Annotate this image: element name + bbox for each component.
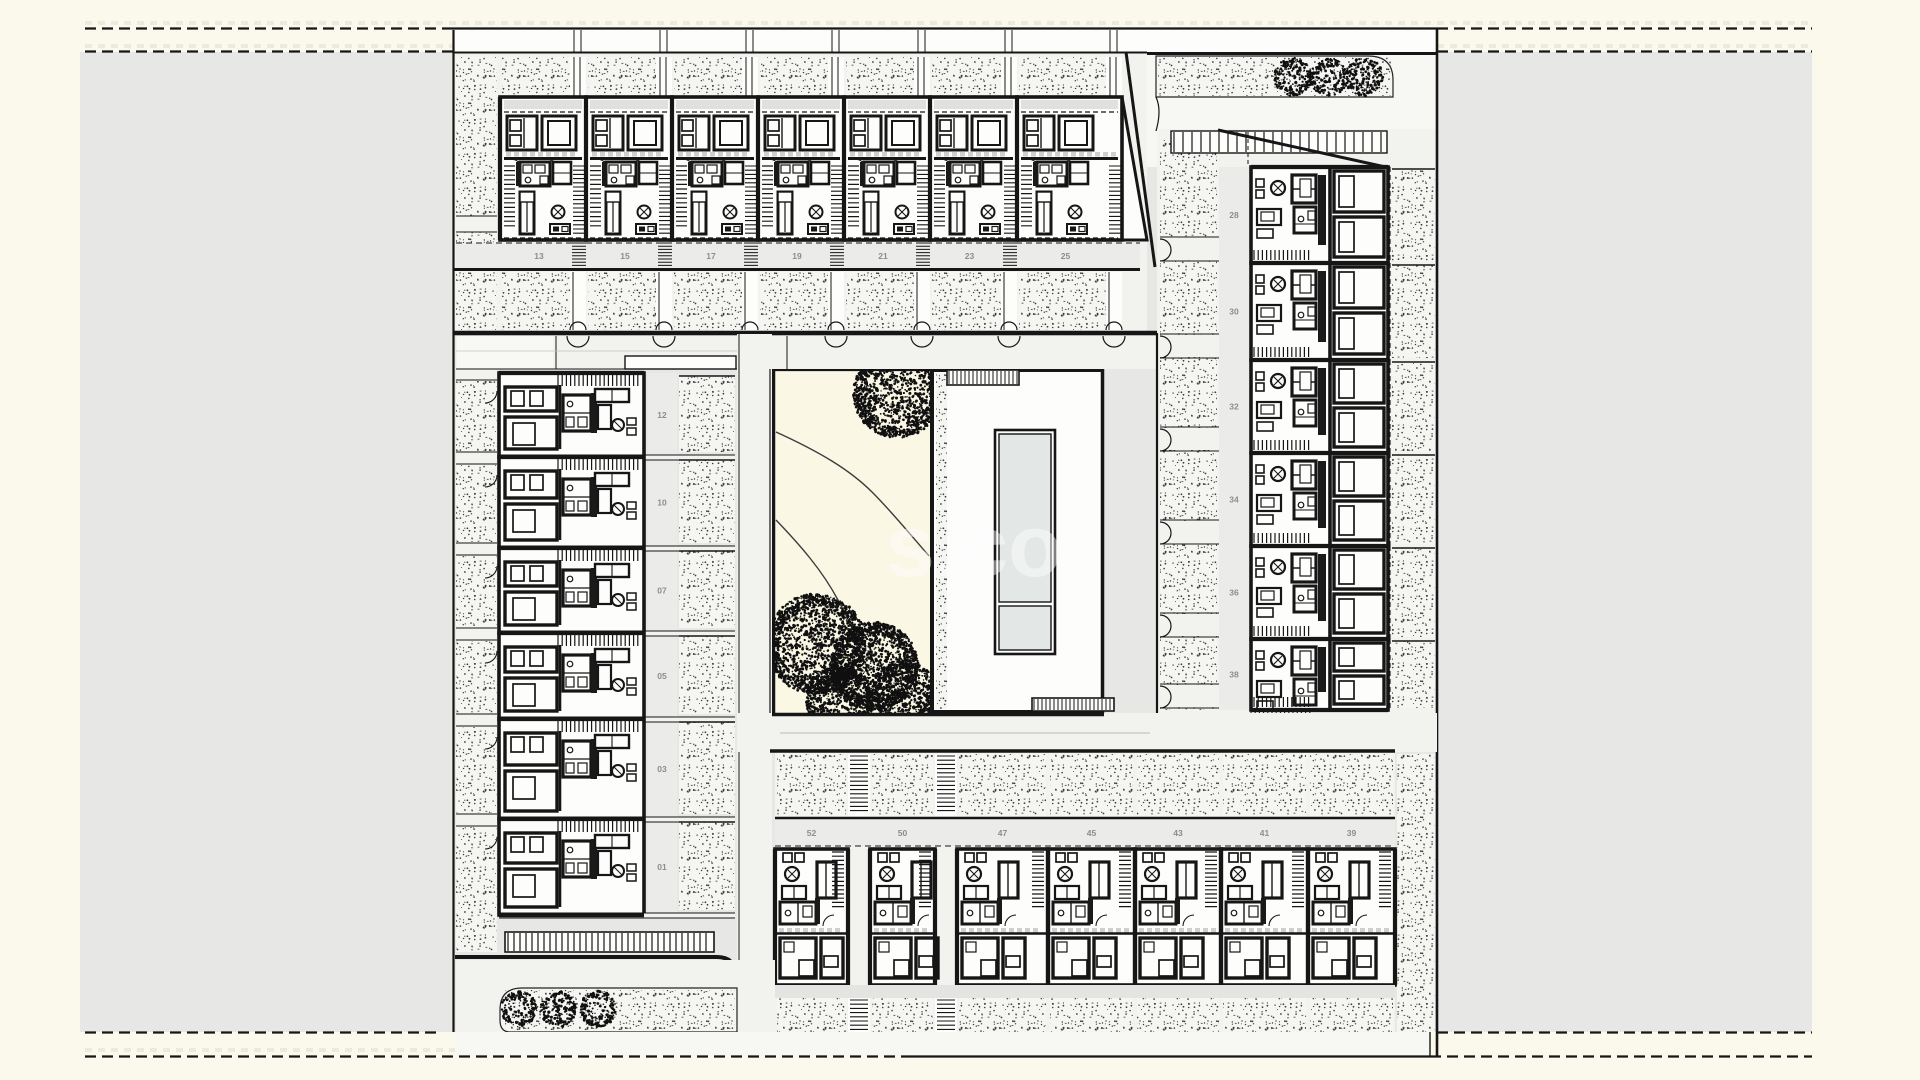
svg-text:25: 25: [1061, 251, 1071, 261]
svg-text:38: 38: [1229, 670, 1239, 680]
svg-text:32: 32: [1229, 402, 1239, 412]
svg-text:28: 28: [1229, 210, 1239, 220]
svg-text:13: 13: [534, 251, 544, 261]
svg-text:10: 10: [657, 498, 667, 508]
svg-text:07: 07: [657, 586, 667, 596]
svg-text:21: 21: [878, 251, 888, 261]
svg-text:17: 17: [706, 251, 716, 261]
svg-text:36: 36: [1229, 588, 1239, 598]
svg-text:23: 23: [965, 251, 975, 261]
svg-text:05: 05: [657, 671, 667, 681]
svg-text:01: 01: [657, 862, 667, 872]
svg-text:12: 12: [657, 410, 667, 420]
svg-text:19: 19: [792, 251, 802, 261]
svg-text:30: 30: [1229, 307, 1239, 317]
svg-text:03: 03: [657, 764, 667, 774]
svg-text:15: 15: [620, 251, 630, 261]
svg-text:34: 34: [1229, 495, 1239, 505]
